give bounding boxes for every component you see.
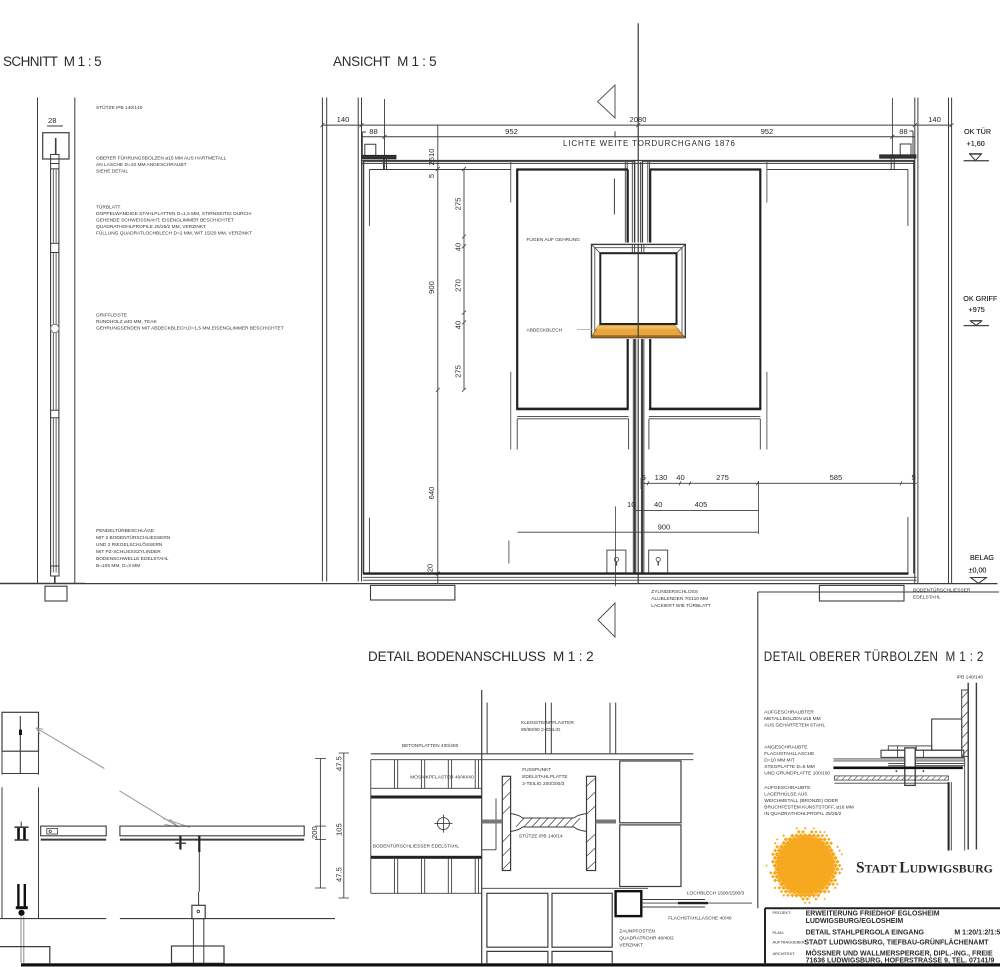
svg-text:EDELSTAHLPLATTE: EDELSTAHLPLATTE: [522, 774, 567, 780]
svg-text:20: 20: [426, 564, 435, 572]
svg-text:275: 275: [454, 365, 463, 378]
svg-text:LICHTE WEITE TORDURCHGANG 1876: LICHTE WEITE TORDURCHGANG 1876: [563, 139, 736, 148]
svg-text:5: 5: [642, 473, 646, 482]
svg-text:AUFGESCHRAUBTE: AUFGESCHRAUBTE: [764, 785, 810, 791]
svg-text:SIEHE DETAIL: SIEHE DETAIL: [96, 169, 128, 175]
svg-text:SCHNITT M 1 : 5: SCHNITT M 1 : 5: [3, 54, 102, 69]
svg-text:UND GRUNDPLATTE 100/100: UND GRUNDPLATTE 100/100: [764, 771, 830, 777]
svg-text:STADT LUDWIGSBURG: STADT LUDWIGSBURG: [856, 860, 993, 877]
svg-text:LOCHBLECH 1500/1500/3: LOCHBLECH 1500/1500/3: [687, 891, 745, 897]
svg-text:TÜRBLATT: TÜRBLATT: [96, 204, 120, 211]
svg-text:88: 88: [899, 127, 907, 136]
svg-text:2510: 2510: [427, 149, 436, 166]
svg-text:10: 10: [627, 500, 635, 509]
svg-text:ZYLINDERSCHLOSS: ZYLINDERSCHLOSS: [651, 589, 698, 595]
svg-text:AUFTRAGGEBER:: AUFTRAGGEBER:: [773, 940, 806, 945]
svg-text:BODENSCHWELLE EDELSTAHL: BODENSCHWELLE EDELSTAHL: [96, 556, 169, 562]
svg-text:BELAG: BELAG: [970, 553, 994, 562]
svg-text:BODENTÜRSCHLIESSER EDELSTAHL: BODENTÜRSCHLIESSER EDELSTAHL: [373, 843, 460, 850]
svg-text:+1,60: +1,60: [967, 139, 985, 148]
svg-text:28: 28: [48, 116, 56, 125]
svg-text:UND 2 RIEGELSCHLÖSSERN: UND 2 RIEGELSCHLÖSSERN: [96, 541, 163, 548]
svg-text:LUDWIGSBURG/EGLOSHEIM: LUDWIGSBURG/EGLOSHEIM: [806, 918, 904, 925]
svg-text:M 1:20/1:2/1:5: M 1:20/1:2/1:5: [954, 930, 1000, 937]
svg-text:40: 40: [454, 243, 463, 251]
svg-text:OBERER FÜHRUNGSBOLZEN ⌀15 MM A: OBERER FÜHRUNGSBOLZEN ⌀15 MM AUS HARTMET…: [96, 155, 227, 162]
svg-text:DOPPELWANDIGE STAHLPLATTEN D=1: DOPPELWANDIGE STAHLPLATTEN D=1,5 MM, STI…: [96, 211, 253, 217]
svg-text:275: 275: [454, 198, 463, 211]
svg-text:47.5: 47.5: [335, 867, 344, 882]
svg-text:88: 88: [369, 127, 377, 136]
svg-text:FLACHSTAHLLASCHE: FLACHSTAHLLASCHE: [764, 751, 814, 757]
svg-text:RUNDHOLZ ⌀40 MM, TEAK: RUNDHOLZ ⌀40 MM, TEAK: [96, 319, 157, 325]
svg-text:±0,00: ±0,00: [969, 566, 987, 575]
svg-text:BETONPLATTEN 400/400: BETONPLATTEN 400/400: [402, 743, 459, 749]
svg-text:PENDELTÜRBESCHLÄGE: PENDELTÜRBESCHLÄGE: [96, 527, 154, 534]
svg-text:BRUCHFESTEM KUNSTSTOFF, ⌀16 MM: BRUCHFESTEM KUNSTSTOFF, ⌀16 MM: [764, 805, 853, 811]
svg-text:OK GRIFF: OK GRIFF: [963, 294, 998, 303]
svg-text:140: 140: [928, 115, 941, 124]
svg-text:952: 952: [505, 127, 518, 136]
svg-text:GEHENDE SCHWEISSNAHT, EISENGLI: GEHENDE SCHWEISSNAHT, EISENGLIMMER BESCH…: [96, 218, 234, 224]
svg-text:MIT PZ-SCHLIESSZYLINDER: MIT PZ-SCHLIESSZYLINDER: [96, 549, 161, 555]
svg-text:ABDECKBLECH: ABDECKBLECH: [527, 328, 563, 334]
svg-text:FLACHSTAHLLASCHE 40/40: FLACHSTAHLLASCHE 40/40: [668, 916, 732, 922]
svg-text:ANSICHT M 1 : 5: ANSICHT M 1 : 5: [333, 54, 437, 69]
svg-text:PLAN:: PLAN:: [773, 930, 784, 935]
svg-text:105: 105: [335, 823, 344, 836]
svg-text:WEICHMETALL (BRONZE) ODER: WEICHMETALL (BRONZE) ODER: [764, 798, 838, 804]
svg-text:QUADRATHOHLPROFILE 25/25/2 MM,: QUADRATHOHLPROFILE 25/25/2 MM, VERZINKT: [96, 224, 206, 230]
svg-text:5: 5: [427, 174, 436, 178]
svg-text:IPB 140/140: IPB 140/140: [957, 675, 984, 681]
svg-text:DETAIL STAHLPERGOLA EINGANG: DETAIL STAHLPERGOLA EINGANG: [806, 930, 925, 937]
svg-text:5: 5: [911, 473, 915, 482]
svg-text:D=10 MM MIT: D=10 MM MIT: [764, 758, 795, 764]
svg-text:AN LASCHE D=10 MM ANGESCHRAUBT: AN LASCHE D=10 MM ANGESCHRAUBT: [96, 162, 187, 168]
svg-text:270: 270: [454, 279, 463, 292]
svg-text:ERWEITERUNG FRIEDHOF EGLOSHEIM: ERWEITERUNG FRIEDHOF EGLOSHEIM: [806, 910, 940, 917]
svg-text:MÖSSNER UND WALLMERSPERGER, DI: MÖSSNER UND WALLMERSPERGER, DIPL.-ING., …: [806, 948, 993, 957]
svg-text:GEHRUNGSENDEN MIT ABDECKBLECH,: GEHRUNGSENDEN MIT ABDECKBLECH,D=1,5 MM,E…: [96, 326, 284, 332]
svg-text:GRIFFLEISTE: GRIFFLEISTE: [96, 313, 127, 319]
svg-text:952: 952: [761, 127, 774, 136]
svg-text:MIT 2 BODENTÜRSCHLIESSERN: MIT 2 BODENTÜRSCHLIESSERN: [96, 534, 171, 541]
svg-text:MOSAIKPFLASTER 40/40/40: MOSAIKPFLASTER 40/40/40: [410, 775, 474, 781]
svg-text:140: 140: [337, 115, 350, 124]
svg-text:2-TEILIG 200/200/3: 2-TEILIG 200/200/3: [522, 781, 564, 787]
svg-text:METALLBOLZEN ⌀15 MM: METALLBOLZEN ⌀15 MM: [764, 716, 820, 722]
svg-text:VERZINKT: VERZINKT: [619, 943, 643, 949]
svg-text:DETAIL BODENANSCHLUSS M 1 : 2: DETAIL BODENANSCHLUSS M 1 : 2: [368, 649, 594, 664]
svg-text:200: 200: [310, 826, 319, 839]
svg-text:LACKIERT WIE TÜRBLATT: LACKIERT WIE TÜRBLATT: [651, 602, 710, 609]
svg-text:ALUBLENDEN 70/110 MM: ALUBLENDEN 70/110 MM: [651, 596, 708, 602]
svg-text:2080: 2080: [630, 115, 647, 124]
svg-text:IN QUADRATHOHLPROFIL 25/25/2: IN QUADRATHOHLPROFIL 25/25/2: [764, 811, 841, 817]
svg-text:+975: +975: [969, 305, 985, 314]
svg-text:STADT LUDWIGSBURG, TIEFBAU-GRÜ: STADT LUDWIGSBURG, TIEFBAU-GRÜNFLÄCHENAM…: [804, 937, 989, 946]
svg-text:585: 585: [830, 473, 843, 482]
svg-text:40: 40: [676, 473, 684, 482]
svg-text:PROJEKT:: PROJEKT:: [773, 910, 792, 915]
svg-text:ARCHITEKT:: ARCHITEKT:: [773, 951, 796, 956]
svg-text:40: 40: [654, 500, 662, 509]
svg-text:FÜLLUNG QUADRATLOCHBLECH D=2 M: FÜLLUNG QUADRATLOCHBLECH D=2 MM, W/T 15/…: [96, 230, 252, 237]
svg-text:LAGERHÜLSE AUS: LAGERHÜLSE AUS: [764, 791, 807, 798]
svg-text:QUADRATROHR 40/40/2: QUADRATROHR 40/40/2: [619, 936, 674, 942]
svg-text:900: 900: [427, 281, 436, 294]
svg-text:FUGEN AUF GEHRUNG: FUGEN AUF GEHRUNG: [527, 237, 581, 243]
svg-text:FUSSPUNKT: FUSSPUNKT: [522, 767, 551, 773]
svg-text:STÜTZE IPB 140/14: STÜTZE IPB 140/14: [519, 833, 563, 840]
svg-text:STEGPLATTE D=5 MM: STEGPLATTE D=5 MM: [764, 764, 814, 770]
svg-text:STÜTZE IPB 140/140: STÜTZE IPB 140/140: [96, 104, 143, 111]
svg-text:275: 275: [716, 473, 729, 482]
svg-text:OK TÜR: OK TÜR: [964, 127, 991, 136]
svg-text:47.5: 47.5: [335, 756, 344, 771]
svg-text:EDELSTAHL: EDELSTAHL: [913, 595, 941, 601]
svg-text:KLEINSTEINPFLASTER: KLEINSTEINPFLASTER: [521, 720, 574, 726]
svg-text:900: 900: [658, 523, 671, 532]
svg-text:405: 405: [695, 500, 708, 509]
svg-text:ANGESCHRAUBTE: ANGESCHRAUBTE: [764, 745, 807, 751]
svg-text:ZAUNPFOSTEN: ZAUNPFOSTEN: [619, 929, 655, 935]
svg-text:640: 640: [427, 487, 436, 500]
svg-text:B=105 MM, D=3 MM: B=105 MM, D=3 MM: [96, 563, 140, 569]
svg-text:40: 40: [454, 321, 463, 329]
svg-text:130: 130: [655, 473, 668, 482]
svg-text:90/90/90 2-ZEILIG: 90/90/90 2-ZEILIG: [521, 727, 561, 733]
svg-text:DETAIL OBERER TÜRBOLZEN M 1 :: DETAIL OBERER TÜRBOLZEN M 1 : 2: [764, 649, 984, 664]
svg-text:AUS GEHÄRTETEM STAHL: AUS GEHÄRTETEM STAHL: [764, 722, 825, 729]
svg-text:AUFGESCHRAUBTER: AUFGESCHRAUBTER: [764, 710, 814, 716]
